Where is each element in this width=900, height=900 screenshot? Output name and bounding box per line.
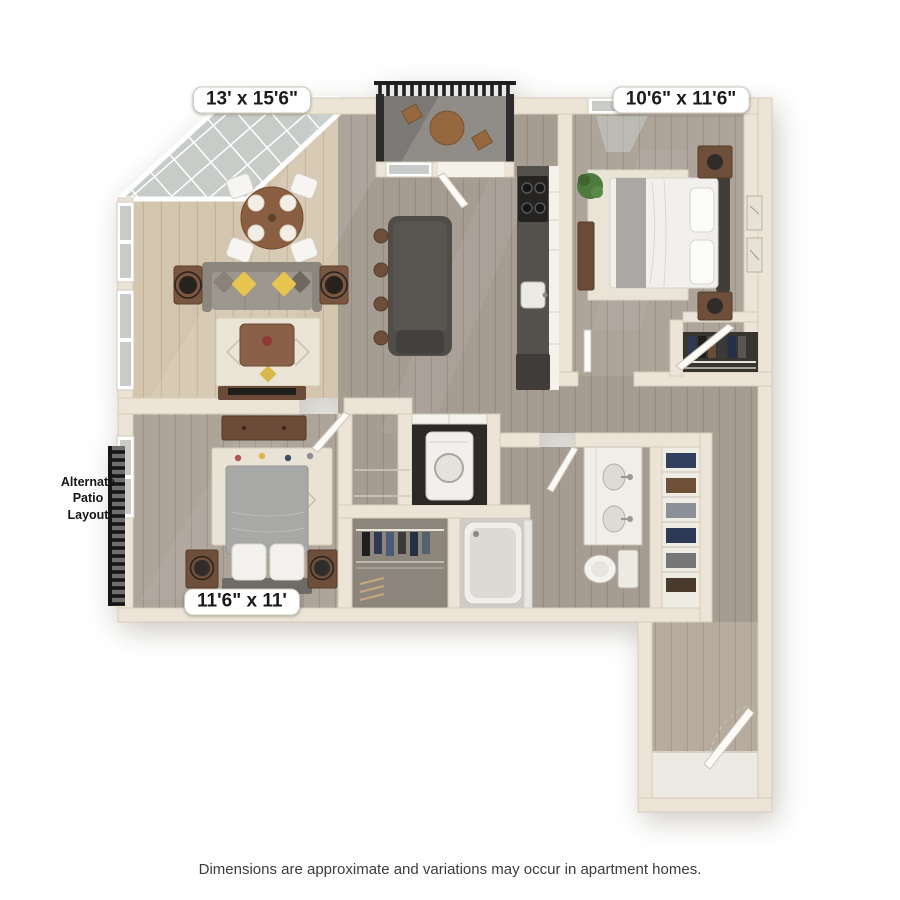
wall-laundry-right [487, 414, 500, 505]
bedroom1-dimensions-label: 10'6" x 11'6" [613, 87, 750, 114]
duvet [226, 466, 308, 554]
sofa [202, 262, 322, 312]
kitchen-island [388, 216, 452, 356]
kitchen-cabinets [549, 166, 559, 390]
alternate-patio-label: Alternate Patio Layout [52, 474, 124, 523]
pillow [270, 544, 304, 580]
stove [518, 176, 548, 222]
faucet [627, 474, 633, 480]
wall-entry-bottom [638, 798, 772, 812]
wall-laundry-left [398, 414, 412, 505]
faucet [543, 293, 548, 298]
wall-bath-a [500, 433, 540, 447]
wall-living-bedroom2-b [344, 398, 412, 414]
pillow [232, 544, 266, 580]
bedroom2-dresser [222, 416, 306, 440]
wall-closet-tub [448, 518, 460, 608]
bedroom1-dresser [578, 222, 594, 290]
wall-living-bedroom2-a [118, 398, 300, 414]
balcony-rail-right [506, 94, 514, 164]
lamp [314, 560, 330, 576]
patio-table [430, 111, 464, 145]
balcony-rail-left [376, 94, 384, 164]
living-window-1 [117, 202, 134, 282]
wall-kitchen-bedroom1 [558, 114, 572, 376]
shower-panel [524, 520, 532, 608]
bathtub-alcove [460, 518, 532, 608]
table-lamp [325, 276, 343, 294]
floor-plan-svg [0, 0, 900, 900]
balcony-door-opening [438, 162, 504, 177]
side-hall-floor [712, 433, 758, 622]
bedroom1-door-leaf [584, 330, 591, 372]
throw-blanket [616, 178, 646, 288]
table-lamp [179, 276, 197, 294]
wall-bedroom1-bottom [634, 372, 772, 386]
laundry-closet [412, 414, 487, 505]
vanity [584, 447, 642, 545]
bedroom2-dimensions-label: 11'6" x 11' [184, 589, 300, 616]
lamp [707, 154, 723, 170]
pillow [690, 240, 714, 284]
tv [228, 388, 296, 395]
entry-hall-floor [652, 622, 758, 752]
floorplan-canvas: 13' x 15'6" 10'6" x 11'6" 11'6" x 11' Al… [0, 0, 900, 900]
disclaimer-text: Dimensions are approximate and variation… [0, 861, 900, 878]
lamp [194, 560, 210, 576]
entry-tile-floor [652, 752, 758, 798]
lamp [707, 298, 723, 314]
wall-bath-linen [650, 447, 662, 608]
living-room-dimensions-label: 13' x 15'6" [193, 87, 311, 114]
alternate-patio-railing [108, 446, 125, 606]
faucet [627, 516, 633, 522]
pillow [690, 188, 714, 232]
tv-console [218, 386, 306, 400]
kitchen-sink [521, 282, 545, 308]
bed-1 [610, 174, 730, 292]
living-window-2 [117, 290, 134, 390]
walkin-closet-floor [352, 518, 448, 608]
wall-closet-top [338, 505, 530, 518]
fridge [516, 354, 550, 390]
washer [426, 432, 473, 500]
wall-entry-left [638, 622, 652, 798]
wall-linen-hall [700, 433, 712, 622]
coffee-table [240, 324, 294, 366]
shower-head [473, 531, 479, 537]
wall-bath-b [575, 433, 712, 447]
